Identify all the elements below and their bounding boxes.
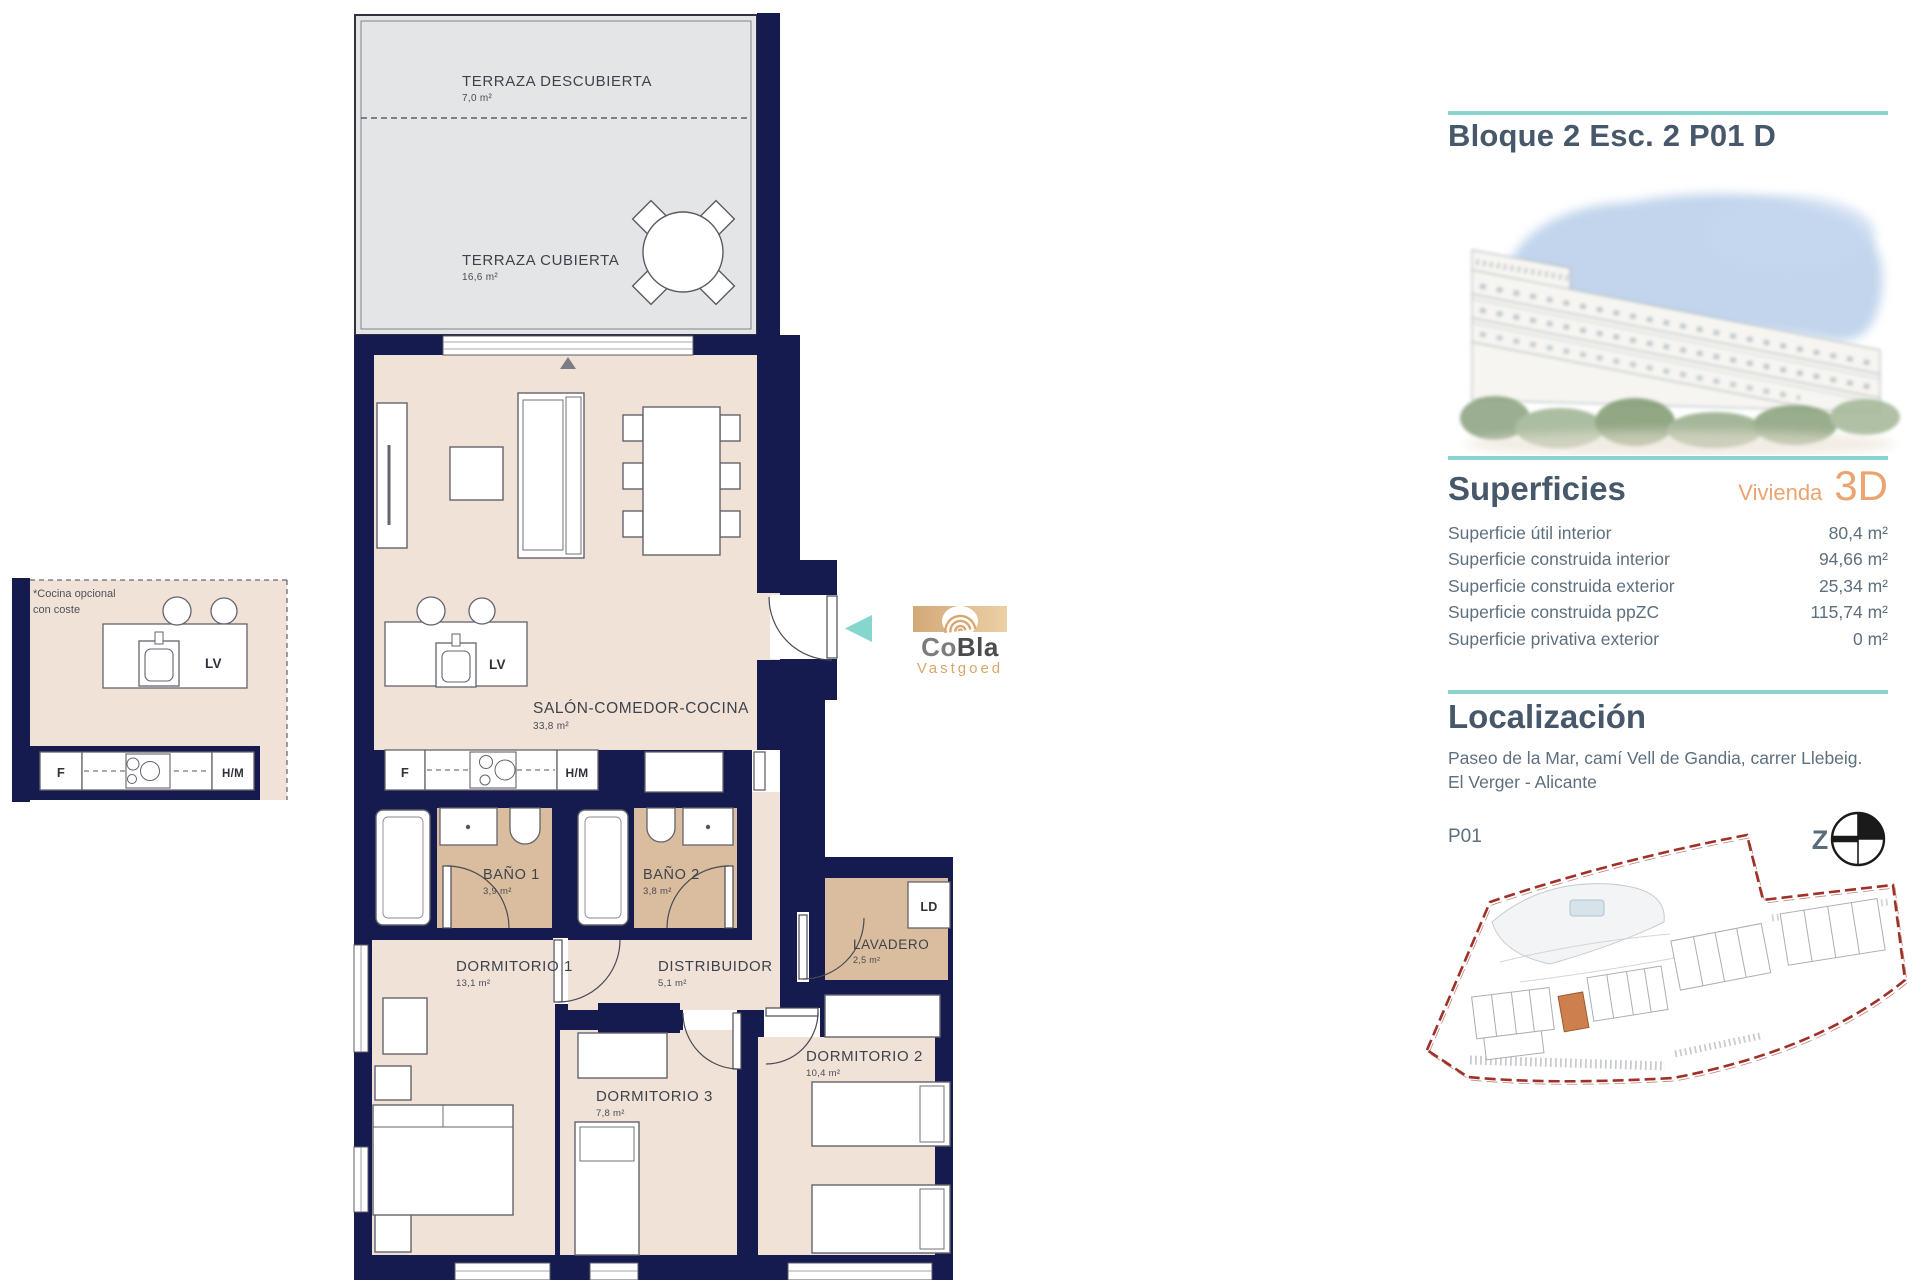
- row-label: Superficie construida ppZC: [1448, 599, 1659, 625]
- room-area-dormitorio1: 13,1 m²: [456, 978, 490, 989]
- room-area-dormitorio3: 7,8 m²: [596, 1108, 625, 1119]
- table-row: Superficie construida interior 94,66 m²: [1448, 546, 1888, 572]
- room-label-dormitorio2: DORMITORIO 2: [806, 1048, 923, 1065]
- laundry-label: LD: [920, 900, 937, 914]
- terrace: TERRAZA DESCUBIERTA 7,0 m² TERRAZA CUBIE…: [355, 13, 780, 335]
- parking-row: [1675, 1036, 1760, 1054]
- room-area-terraza-descubierta: 7,0 m²: [462, 93, 493, 104]
- tv-cabinet-icon: [377, 403, 407, 548]
- divider: [1448, 690, 1888, 694]
- room-label-bano1: BAÑO 1: [483, 866, 540, 883]
- side-table-icon: [450, 447, 503, 500]
- room-area-bano2: 3,8 m²: [643, 886, 672, 897]
- room-label-dormitorio3: DORMITORIO 3: [596, 1088, 713, 1105]
- localizacion-heading: Localización: [1448, 698, 1646, 736]
- room-label-terraza-descubierta: TERRAZA DESCUBIERTA: [462, 73, 652, 90]
- shower-icon: [578, 810, 628, 925]
- toilet-icon: [647, 808, 675, 842]
- nightstand-icon: [375, 1066, 411, 1100]
- row-value: 25,34 m²: [1819, 573, 1888, 599]
- optional-note-line1: *Cocina opcional: [33, 588, 116, 600]
- stool-icon: [211, 598, 237, 624]
- divider: [1448, 456, 1888, 460]
- floor-plan: *Cocina opcional con coste F H/M LV TERR…: [0, 0, 1050, 1280]
- table-row: Superficie construida exterior 25,34 m²: [1448, 573, 1888, 599]
- row-value: 115,74 m²: [1811, 599, 1889, 625]
- dwelling-label: Vivienda: [1738, 480, 1822, 506]
- room-label-distribuidor: DISTRIBUIDOR: [658, 958, 773, 975]
- row-label: Superficie privativa exterior: [1448, 626, 1659, 652]
- fridge-label: F: [57, 765, 65, 780]
- unit-title: Bloque 2 Esc. 2 P01 D: [1448, 118, 1776, 154]
- oven-label: H/M: [222, 768, 244, 780]
- divider: [1448, 111, 1888, 115]
- room-label-dormitorio1: DORMITORIO 1: [456, 958, 573, 975]
- table-row: Superficie privativa exterior 0 m²: [1448, 626, 1888, 652]
- optional-note-line2: con coste: [33, 604, 80, 616]
- wardrobe-icon: [825, 995, 940, 1037]
- superficies-table: Superficie útil interior 80,4 m² Superfi…: [1448, 520, 1888, 652]
- pool: [1570, 900, 1604, 916]
- wardrobe-icon: [578, 1033, 667, 1078]
- wardrobe-icon: [383, 998, 427, 1054]
- room-area-lavadero: 2,5 m²: [853, 955, 880, 965]
- dishwasher-label: LV: [489, 657, 506, 672]
- superficies-heading: Superficies: [1448, 470, 1738, 508]
- row-value: 94,66 m²: [1819, 546, 1888, 572]
- cobla-watermark: CoBla Vastgoed: [899, 604, 1021, 677]
- oven-label: H/M: [566, 766, 589, 780]
- page-canvas: *Cocina opcional con coste F H/M LV TERR…: [0, 0, 1920, 1280]
- row-value: 0 m²: [1853, 626, 1888, 652]
- brand-subtitle: Vastgoed: [899, 660, 1021, 677]
- building-rendering: [1450, 172, 1905, 455]
- address-text: Paseo de la Mar, camí Vell de Gandia, ca…: [1448, 746, 1878, 794]
- table-row: Superficie construida ppZC 115,74 m²: [1448, 599, 1888, 625]
- nightstand-icon: [375, 1214, 411, 1252]
- cobla-logo-icon: [913, 604, 1007, 634]
- room-area-salon: 33,8 m²: [533, 721, 569, 732]
- row-label: Superficie construida exterior: [1448, 573, 1675, 599]
- room-area-distribuidor: 5,1 m²: [658, 978, 687, 989]
- dining-set-icon: [623, 407, 740, 555]
- parking-row: [1470, 1060, 1665, 1066]
- room-area-dormitorio2: 10,4 m²: [806, 1068, 840, 1079]
- stool-icon: [417, 597, 445, 625]
- room-label-bano2: BAÑO 2: [643, 866, 700, 883]
- fridge-label: F: [401, 765, 409, 780]
- terrace-table-icon: [633, 201, 735, 305]
- room-label-terraza-cubierta: TERRAZA CUBIERTA: [462, 252, 619, 269]
- superficies-header: Superficies Vivienda 3D: [1448, 462, 1888, 510]
- dwelling-code: 3D: [1834, 462, 1888, 510]
- toilet-icon: [510, 808, 540, 844]
- row-label: Superficie útil interior: [1448, 520, 1611, 546]
- optional-kitchen-inset: *Cocina opcional con coste F H/M LV: [12, 578, 287, 802]
- row-value: 80,4 m²: [1829, 520, 1888, 546]
- room-label-salon: SALÓN-COMEDOR-COCINA: [533, 700, 749, 717]
- row-label: Superficie construida interior: [1448, 546, 1670, 572]
- dishwasher-label: LV: [205, 656, 222, 671]
- brand-name: CoBla: [899, 635, 1021, 660]
- room-area-bano1: 3,9 m²: [483, 886, 512, 897]
- table-row: Superficie útil interior 80,4 m²: [1448, 520, 1888, 546]
- site-plan: [1420, 822, 1920, 1097]
- landscape-area: [1492, 884, 1664, 964]
- stool-icon: [469, 598, 495, 624]
- highlighted-building: [1558, 992, 1589, 1032]
- room-label-lavadero: LAVADERO: [853, 937, 929, 952]
- stool-icon: [163, 597, 191, 625]
- entrance-arrow-icon: [845, 615, 872, 642]
- shower-icon: [376, 810, 430, 925]
- room-area-terraza-cubierta: 16,6 m²: [462, 272, 498, 283]
